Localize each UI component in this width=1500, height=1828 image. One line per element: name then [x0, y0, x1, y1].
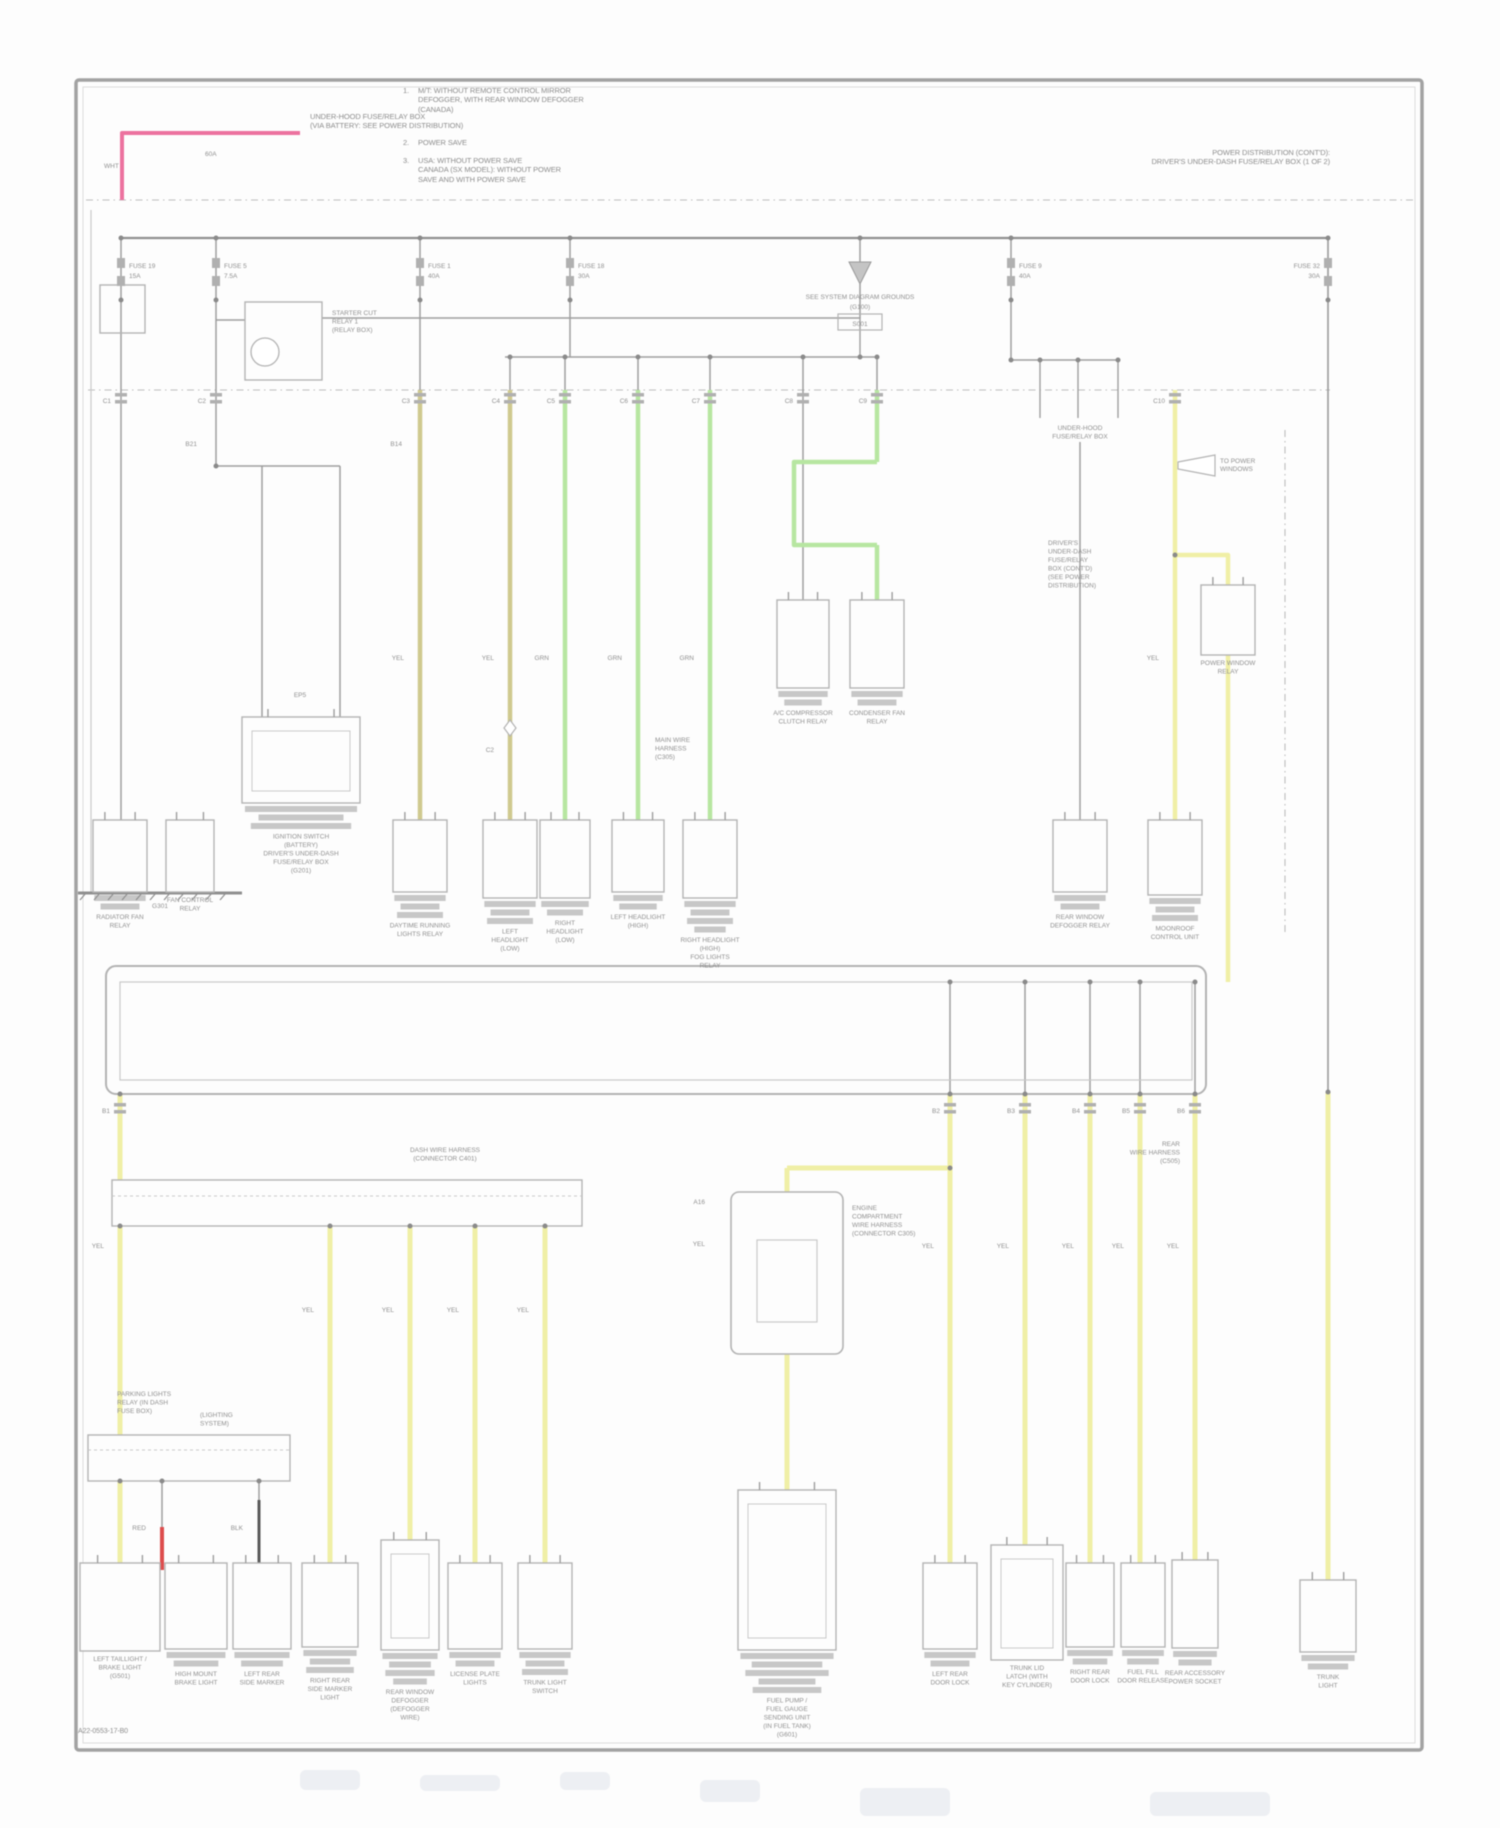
- diagram-label: PARKING LIGHTS: [117, 1391, 172, 1398]
- component-label: RELAY: [180, 906, 201, 913]
- connector-stub: [632, 393, 644, 397]
- component-label: SIDE MARKER: [240, 1680, 285, 1687]
- junction-dot: [1009, 358, 1014, 363]
- connector-stub: [114, 1103, 126, 1107]
- connector-pin-label: B3: [1007, 1108, 1015, 1115]
- junction-dot: [1038, 358, 1043, 363]
- component-label: RELAY: [700, 963, 721, 970]
- diagram-label: YEL: [922, 1243, 935, 1250]
- connector-bar: [1152, 915, 1198, 921]
- diagram-label: B21: [185, 441, 197, 448]
- fuse-name: FUSE 32: [1294, 263, 1321, 270]
- component-label: BRAKE LIGHT: [175, 1680, 218, 1687]
- diagram-label: STARTER CUT: [332, 310, 377, 317]
- diagram-label: (CONNECTOR C401): [413, 1156, 476, 1163]
- component-box: [80, 1563, 160, 1651]
- component-label: POWER WINDOW: [1201, 660, 1257, 667]
- diagram-label: WHT: [104, 163, 119, 170]
- diagram-label: YEL: [1167, 1243, 1180, 1250]
- connector-pin-label: C4: [492, 398, 501, 405]
- diagram-label: SYSTEM): [200, 1421, 229, 1428]
- print-artifact: [560, 1772, 610, 1790]
- connector-bar: [167, 1652, 226, 1658]
- fuse-rating: 15A: [129, 273, 141, 280]
- component-box: [393, 820, 447, 892]
- connector-pin-label: B4: [1072, 1108, 1080, 1115]
- junction-dot: [801, 355, 806, 360]
- connector-bar: [684, 901, 735, 907]
- junction-dot: [708, 355, 713, 360]
- note-3-number: 3.: [403, 156, 409, 165]
- fuse-pad: [416, 258, 424, 268]
- offpage-flag-label: TO POWER: [1220, 458, 1256, 465]
- fuse-pad: [1007, 258, 1015, 268]
- offpage-flag-label: WINDOWS: [1220, 466, 1254, 473]
- diagram-label: FUSE/RELAY BOX: [1052, 434, 1108, 441]
- connector-bar: [234, 1652, 289, 1658]
- connector-pin-label: C6: [620, 398, 629, 405]
- component-label: LIGHT: [320, 1695, 339, 1702]
- connector-bar: [389, 1662, 431, 1668]
- component-box: [738, 1490, 836, 1650]
- connector-bar: [1173, 1651, 1217, 1657]
- diagram-label: DASH WIRE HARNESS: [410, 1147, 481, 1154]
- connector-bar: [241, 1661, 283, 1667]
- print-artifact: [860, 1788, 950, 1816]
- component-label: LEFT: [502, 929, 518, 936]
- connector-bar: [740, 1653, 833, 1659]
- wiring-diagram-page: TO POWERWINDOWSFUSE 1915AFUSE 57.5AFUSE …: [0, 0, 1500, 1828]
- component-box: [165, 1563, 227, 1649]
- diagram-label: (C505): [1160, 1158, 1180, 1165]
- diagram-label: FUSE BOX): [117, 1408, 152, 1415]
- connector-bar: [759, 1679, 816, 1685]
- diagram-label: YEL: [1112, 1243, 1125, 1250]
- diagram-label: (G100): [850, 304, 870, 311]
- junction-dot: [1009, 236, 1014, 241]
- component-box: [166, 820, 214, 892]
- fuse-rating: 40A: [428, 273, 440, 280]
- connector-stub: [1134, 1103, 1146, 1107]
- connector-stub: [559, 400, 571, 404]
- component-label: WIRE): [400, 1715, 419, 1722]
- component-label: RIGHT: [555, 920, 575, 927]
- junction-dot: [858, 355, 863, 360]
- connector-bar: [619, 904, 656, 910]
- component-label: CONDENSER FAN: [849, 710, 905, 717]
- connector-pin-label: C2: [198, 398, 207, 405]
- component-box: [683, 820, 737, 898]
- fuse-name: FUSE 18: [578, 263, 605, 270]
- junction-dot: [160, 1479, 165, 1484]
- fuse-rating: 30A: [578, 273, 590, 280]
- diagram-label: WIRE HARNESS: [852, 1222, 903, 1229]
- component-label: REAR WINDOW: [386, 1689, 435, 1696]
- junction-dot: [1326, 236, 1331, 241]
- connector-bar: [401, 904, 440, 910]
- print-artifact: [420, 1775, 500, 1791]
- component-label: POWER SOCKET: [1168, 1679, 1221, 1686]
- component-label: RIGHT HEADLIGHT: [680, 937, 739, 944]
- component-box: [777, 600, 829, 688]
- junction-dot: [1138, 1092, 1143, 1097]
- component-label: REAR WINDOW: [1056, 914, 1105, 921]
- component-label: CONTROL UNIT: [1151, 934, 1200, 941]
- diagram-label: YEL: [1062, 1243, 1075, 1250]
- component-label: LIGHT: [1318, 1683, 1337, 1690]
- component-label: LEFT REAR: [244, 1671, 280, 1678]
- connector-bar: [487, 918, 533, 924]
- connector-stub: [871, 400, 883, 404]
- junction-dot: [1023, 980, 1028, 985]
- junction-dot: [1023, 1092, 1028, 1097]
- fuse-pad: [1007, 276, 1015, 286]
- component-box: [540, 820, 590, 898]
- fuse-pad: [1324, 276, 1332, 286]
- diagram-label: YEL: [382, 1307, 395, 1314]
- connector-stub: [944, 1103, 956, 1107]
- note-2-number: 2.: [403, 138, 409, 147]
- diagram-label: HARNESS: [655, 746, 687, 753]
- connector-bar: [1149, 898, 1200, 904]
- junction-dot: [1173, 553, 1178, 558]
- junction-dot: [1138, 980, 1143, 985]
- note-3-text: USA: WITHOUT POWER SAVE CANADA (SX MODEL…: [418, 156, 561, 184]
- diagram-label: GRN: [535, 655, 550, 662]
- junction-dot: [948, 980, 953, 985]
- connector-stub: [944, 1110, 956, 1114]
- component-label: LIGHTS: [463, 1680, 487, 1687]
- component-box: [1066, 1563, 1114, 1647]
- component-label: LEFT HEADLIGHT: [611, 914, 666, 921]
- connector-bar: [924, 1652, 975, 1658]
- diagram-label: (LIGHTING: [200, 1412, 233, 1419]
- diagram-blur-layer: TO POWERWINDOWSFUSE 1915AFUSE 57.5AFUSE …: [0, 0, 1500, 1828]
- junction-dot: [118, 1092, 123, 1097]
- diagram-label: UNDER-DASH: [1048, 549, 1092, 556]
- connector-bar: [101, 904, 140, 910]
- component-label: (IN FUEL TANK): [763, 1723, 811, 1730]
- diagram-label: YEL: [997, 1243, 1010, 1250]
- diagram-label: WIRE HARNESS: [1130, 1150, 1181, 1157]
- junction-dot: [948, 1092, 953, 1097]
- diagram-label: DISTRIBUTION): [1048, 583, 1096, 590]
- connector-bar: [310, 1659, 350, 1665]
- junction-dot: [418, 298, 423, 303]
- connector-bar: [784, 700, 821, 706]
- component-label: TRUNK LID: [1010, 1665, 1045, 1672]
- diagram-label: (RELAY BOX): [332, 327, 373, 334]
- connector-stub: [1169, 400, 1181, 404]
- connector-bar: [393, 1679, 427, 1685]
- connector-bar: [1127, 1659, 1159, 1665]
- print-artifact: [1150, 1792, 1270, 1816]
- connector-pin-label: B1: [102, 1108, 110, 1115]
- component-box: [483, 820, 537, 898]
- connector-stub: [1189, 1110, 1201, 1114]
- connector-stub: [115, 393, 127, 397]
- note-2-text: POWER SAVE: [418, 138, 467, 147]
- junction-dot: [543, 1224, 548, 1229]
- junction-dot: [1009, 298, 1014, 303]
- junction-dot: [214, 464, 219, 469]
- connector-pin-label: B2: [932, 1108, 940, 1115]
- component-label: RIGHT REAR: [1070, 1669, 1110, 1676]
- junction-dot: [636, 355, 641, 360]
- component-label: LATCH (WITH: [1006, 1674, 1048, 1681]
- fuse-rating: 30A: [1308, 273, 1320, 280]
- connector-bar: [382, 1653, 437, 1659]
- component-label: (G601): [777, 1732, 797, 1739]
- diagram-label: B14: [390, 441, 402, 448]
- junction-dot: [1193, 1092, 1198, 1097]
- connector-stub: [414, 393, 426, 397]
- diagram-label: UNDER-HOOD: [1058, 425, 1103, 432]
- connector-pin-label: B5: [1122, 1108, 1130, 1115]
- component-label: KEY CYLINDER): [1002, 1682, 1052, 1689]
- diagram-label: YEL: [302, 1307, 315, 1314]
- component-box: [233, 1563, 291, 1649]
- component-label: (BATTERY): [284, 842, 318, 849]
- component-box: [1300, 1580, 1356, 1652]
- connector-stub: [704, 393, 716, 397]
- connector-bar: [385, 1670, 434, 1676]
- connector-stub: [1189, 1103, 1201, 1107]
- component-box: [850, 600, 904, 688]
- diagram-label: BOX (CONT'D): [1048, 566, 1092, 573]
- junction-dot: [1116, 358, 1121, 363]
- component-label: BRAKE LIGHT: [99, 1665, 142, 1672]
- junction-dot: [473, 1224, 478, 1229]
- diagram-label: MAIN WIRE: [655, 737, 691, 744]
- connector-stub: [1169, 393, 1181, 397]
- relay-coil-icon: [251, 338, 279, 366]
- diagram-label: YEL: [447, 1307, 460, 1314]
- connector-bar: [541, 901, 589, 907]
- connector-pin-label: C9: [859, 398, 868, 405]
- connector-bar: [1073, 1659, 1108, 1665]
- power-distribution-wiring-diagram: TO POWERWINDOWSFUSE 1915AFUSE 57.5AFUSE …: [0, 0, 1500, 1828]
- diagram-label: REAR: [1162, 1141, 1180, 1148]
- connector-bar: [858, 700, 897, 706]
- diagram-label: (CONNECTOR C305): [852, 1231, 915, 1238]
- connector-bar: [1067, 1650, 1113, 1656]
- component-box: [923, 1563, 977, 1649]
- connector-bar: [753, 1687, 822, 1693]
- component-label: IGNITION SWITCH: [273, 834, 330, 841]
- fuse-pad: [117, 276, 125, 286]
- diagram-label: YEL: [92, 1243, 105, 1250]
- diagram-label: YEL: [1147, 655, 1160, 662]
- junction-dot: [119, 298, 124, 303]
- component-box: [242, 717, 360, 803]
- component-box: [1201, 585, 1255, 655]
- fuse-name: FUSE 1: [428, 263, 451, 270]
- component-label: HIGH MOUNT: [175, 1671, 217, 1678]
- connector-stub: [559, 393, 571, 397]
- connector-stub: [210, 400, 222, 404]
- connector-stub: [871, 393, 883, 397]
- junction-dot: [118, 1224, 123, 1229]
- fuse-pad: [1324, 258, 1332, 268]
- component-box: [991, 1545, 1063, 1660]
- connector-bar: [694, 927, 725, 933]
- connector-pin-label: C10: [1153, 398, 1165, 405]
- connector-pin-label: C7: [692, 398, 701, 405]
- fuse-rating: 40A: [1019, 273, 1031, 280]
- component-label: LEFT REAR: [932, 1671, 968, 1678]
- connector-bar: [745, 1670, 828, 1676]
- component-label: SWITCH: [532, 1688, 558, 1695]
- junction-dot: [1076, 358, 1081, 363]
- component-label: FUEL PUMP /: [767, 1698, 808, 1705]
- fuse-pad: [566, 258, 574, 268]
- connector-bar: [522, 1669, 568, 1675]
- connector-bar: [449, 1652, 500, 1658]
- component-label: DOOR LOCK: [1070, 1678, 1110, 1685]
- connector-bar: [1178, 1660, 1211, 1666]
- component-label: (HIGH): [628, 923, 649, 930]
- diagram-label: EP5: [294, 692, 307, 699]
- component-box: [448, 1563, 502, 1649]
- component-label: CLUTCH RELAY: [778, 719, 828, 726]
- diagram-title: POWER DISTRIBUTION (CONT'D): DRIVER'S UN…: [1151, 148, 1330, 167]
- diagram-label: FUSE/RELAY: [1048, 557, 1089, 564]
- connector-pin-label: C1: [103, 398, 112, 405]
- component-label: FAN CONTROL: [167, 897, 214, 904]
- junction-dot: [948, 1166, 953, 1171]
- junction-dot: [858, 236, 863, 241]
- component-label: SENDING UNIT: [764, 1715, 811, 1722]
- connector-stub: [504, 400, 516, 404]
- diagram-label: YEL: [517, 1307, 530, 1314]
- connector-stub: [1084, 1110, 1096, 1114]
- connector-stub: [1019, 1110, 1031, 1114]
- component-label: TRUNK: [1317, 1674, 1340, 1681]
- connector-bar: [547, 910, 583, 916]
- diagram-label: YEL: [482, 655, 495, 662]
- component-box: [1148, 820, 1202, 895]
- diagram-label: YEL: [693, 1241, 706, 1248]
- junction-dot: [214, 236, 219, 241]
- connector-stub: [114, 1110, 126, 1114]
- junction-dot: [1193, 980, 1198, 985]
- junction-dot: [1326, 298, 1331, 303]
- component-label: (LOW): [555, 937, 574, 944]
- diagram-label: COMPARTMENT: [852, 1214, 902, 1221]
- component-label: RADIATOR FAN: [96, 914, 144, 921]
- component-label: LEFT TAILLIGHT /: [93, 1656, 147, 1663]
- connector-bar: [303, 1650, 356, 1656]
- diagram-label: (C305): [655, 754, 675, 761]
- connector-bar: [691, 910, 730, 916]
- connector-bar: [484, 901, 535, 907]
- fuse-pad: [212, 258, 220, 268]
- connector-stub: [414, 400, 426, 404]
- diagram-label: GRN: [680, 655, 695, 662]
- connector-pin-label: C3: [402, 398, 411, 405]
- connector-bar: [306, 1667, 354, 1673]
- note-1-number: 1.: [403, 86, 409, 95]
- connector-stub: [210, 393, 222, 397]
- fuse-pad: [566, 276, 574, 286]
- component-label: (G501): [110, 1673, 130, 1680]
- connector-bar: [174, 1661, 219, 1667]
- junction-dot: [1088, 1092, 1093, 1097]
- component-label: (G201): [291, 868, 311, 875]
- connector-bar: [245, 806, 357, 812]
- junction-dot: [328, 1224, 333, 1229]
- component-label: RIGHT REAR: [310, 1678, 350, 1685]
- junction-dot: [568, 298, 573, 303]
- diagram-id: A22-0553-17-B0: [78, 1728, 128, 1737]
- component-label: (DEFOGGER: [390, 1706, 430, 1713]
- battery-feed-label: UNDER-HOOD FUSE/RELAY BOX (VIA BATTERY: …: [310, 112, 463, 131]
- connector-stub: [704, 400, 716, 404]
- fuse-pad: [117, 258, 125, 268]
- component-label: MOONROOF: [1156, 926, 1195, 933]
- connector-bar: [1301, 1655, 1354, 1661]
- diagram-label: RELAY 1: [332, 319, 359, 326]
- component-label: FUSE/RELAY BOX: [273, 859, 329, 866]
- connector-pin-label: B6: [1177, 1108, 1185, 1115]
- connector-bar: [1308, 1664, 1348, 1670]
- junction-dot: [568, 236, 573, 241]
- connector-bar: [931, 1661, 970, 1667]
- diagram-label: S001: [852, 321, 868, 328]
- connector-stub: [1084, 1103, 1096, 1107]
- diagram-label: A16: [693, 1199, 705, 1206]
- connector-stub: [797, 400, 809, 404]
- connector-bar: [397, 912, 443, 918]
- diagram-label: RELAY (IN DASH: [117, 1400, 168, 1407]
- connector-bar: [1156, 907, 1195, 913]
- connector-bar: [613, 895, 662, 901]
- junction-dot: [1326, 1090, 1331, 1095]
- component-box: [302, 1563, 358, 1647]
- diagram-label: G301: [152, 903, 168, 910]
- print-artifact: [300, 1770, 360, 1790]
- fuse-name: FUSE 19: [129, 263, 156, 270]
- connector-bar: [519, 1652, 570, 1658]
- connector-bar: [778, 691, 827, 697]
- diagram-label: BLK: [231, 1525, 244, 1532]
- note-1-text: M/T: WITHOUT REMOTE CONTROL MIRROR DEFOG…: [418, 86, 584, 114]
- component-label: LIGHTS RELAY: [397, 931, 444, 938]
- junction-dot: [418, 236, 423, 241]
- junction-dot: [257, 1479, 262, 1484]
- connector-bar: [491, 910, 530, 916]
- diagram-label: (SEE POWER: [1048, 574, 1090, 581]
- fuse-rating: 7.5A: [224, 273, 238, 280]
- component-label: FUEL FILL: [1127, 1669, 1159, 1676]
- component-label: (LOW): [500, 946, 519, 953]
- junction-dot: [1088, 980, 1093, 985]
- connector-bar: [687, 918, 733, 924]
- diagram-label: C2: [486, 747, 495, 754]
- connector-stub: [504, 393, 516, 397]
- component-box: [1172, 1560, 1218, 1648]
- junction-dot: [875, 355, 880, 360]
- component-label: RELAY: [110, 923, 131, 930]
- component-label: DRIVER'S UNDER-DASH: [263, 851, 339, 858]
- component-label: RELAY: [1218, 669, 1239, 676]
- component-label: FUEL GAUGE: [766, 1706, 808, 1713]
- component-label: DOOR LOCK: [930, 1680, 970, 1687]
- connector-bar: [394, 895, 445, 901]
- diagram-label: SEE SYSTEM DIAGRAM GROUNDS: [806, 294, 915, 301]
- fuse-name: FUSE 9: [1019, 263, 1042, 270]
